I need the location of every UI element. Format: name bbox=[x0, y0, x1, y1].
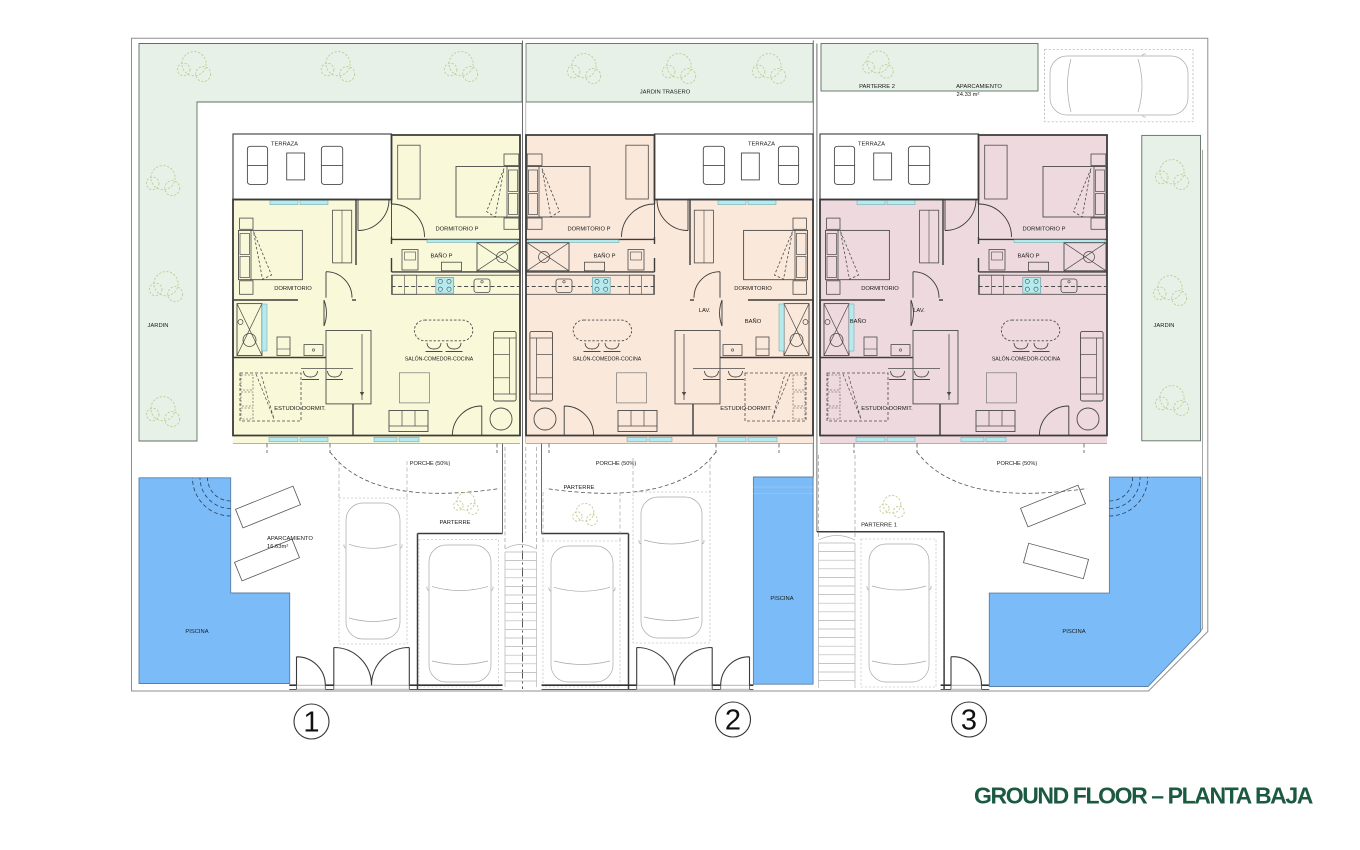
svg-text:PISCINA: PISCINA bbox=[1062, 629, 1085, 635]
svg-text:TERRAZA: TERRAZA bbox=[271, 142, 298, 148]
svg-text:PISCINA: PISCINA bbox=[770, 596, 793, 602]
svg-text:SALÓN-COMEDOR-COCINA: SALÓN-COMEDOR-COCINA bbox=[405, 356, 474, 363]
svg-text:LAV.: LAV. bbox=[913, 308, 925, 314]
svg-text:16.63m²: 16.63m² bbox=[267, 544, 288, 550]
svg-text:BAÑO: BAÑO bbox=[745, 318, 762, 325]
svg-text:PORCHE (50%): PORCHE (50%) bbox=[410, 461, 451, 467]
svg-text:DORMITORIO: DORMITORIO bbox=[861, 286, 899, 292]
svg-text:APARCAMIENTO: APARCAMIENTO bbox=[267, 536, 313, 542]
svg-text:PARTERRE: PARTERRE bbox=[439, 520, 470, 526]
svg-text:ESTUDIO-DORMIT.: ESTUDIO-DORMIT. bbox=[720, 406, 772, 412]
svg-text:ESTUDIO-DORMIT.: ESTUDIO-DORMIT. bbox=[861, 406, 913, 412]
svg-text:APARCAMIENTO: APARCAMIENTO bbox=[956, 84, 1002, 90]
svg-text:1: 1 bbox=[303, 707, 319, 739]
svg-text:PORCHE (50%): PORCHE (50%) bbox=[997, 461, 1038, 467]
svg-text:ESTUDIO-DORMIT.: ESTUDIO-DORMIT. bbox=[274, 406, 326, 412]
svg-text:JARDIN: JARDIN bbox=[1154, 323, 1175, 329]
svg-text:PARTERRE: PARTERRE bbox=[563, 485, 594, 491]
svg-text:DORMITORIO P: DORMITORIO P bbox=[435, 227, 478, 233]
svg-text:BAÑO P: BAÑO P bbox=[594, 253, 616, 260]
svg-text:GROUND FLOOR – PLANTA BAJA: GROUND FLOOR – PLANTA BAJA bbox=[974, 783, 1313, 809]
svg-text:TERRAZA: TERRAZA bbox=[858, 142, 885, 148]
svg-text:BAÑO P: BAÑO P bbox=[1018, 253, 1040, 260]
svg-text:DORMITORIO P: DORMITORIO P bbox=[567, 227, 610, 233]
svg-text:TERRAZA: TERRAZA bbox=[748, 142, 775, 148]
svg-text:BAÑO: BAÑO bbox=[850, 318, 867, 325]
svg-text:PARTERRE 1: PARTERRE 1 bbox=[861, 523, 897, 529]
svg-text:DORMITORIO: DORMITORIO bbox=[734, 286, 772, 292]
svg-text:SALÓN-COMEDOR-COCINA: SALÓN-COMEDOR-COCINA bbox=[573, 356, 642, 363]
svg-text:PORCHE (50%): PORCHE (50%) bbox=[596, 461, 637, 467]
svg-text:3: 3 bbox=[961, 705, 977, 737]
svg-text:LAV.: LAV. bbox=[699, 308, 711, 314]
svg-text:BAÑO P: BAÑO P bbox=[431, 253, 453, 260]
svg-text:PISCINA: PISCINA bbox=[185, 629, 208, 635]
svg-text:JARDIN: JARDIN bbox=[148, 323, 169, 329]
svg-text:SALÓN-COMEDOR-COCINA: SALÓN-COMEDOR-COCINA bbox=[992, 356, 1061, 363]
svg-text:24.33 m²: 24.33 m² bbox=[957, 92, 980, 98]
svg-text:2: 2 bbox=[725, 705, 741, 737]
svg-text:JARDIN TRASERO: JARDIN TRASERO bbox=[640, 90, 691, 96]
svg-text:DORMITORIO: DORMITORIO bbox=[274, 286, 312, 292]
svg-text:PARTERRE 2: PARTERRE 2 bbox=[859, 84, 895, 90]
svg-text:DORMITORIO P: DORMITORIO P bbox=[1022, 227, 1065, 233]
